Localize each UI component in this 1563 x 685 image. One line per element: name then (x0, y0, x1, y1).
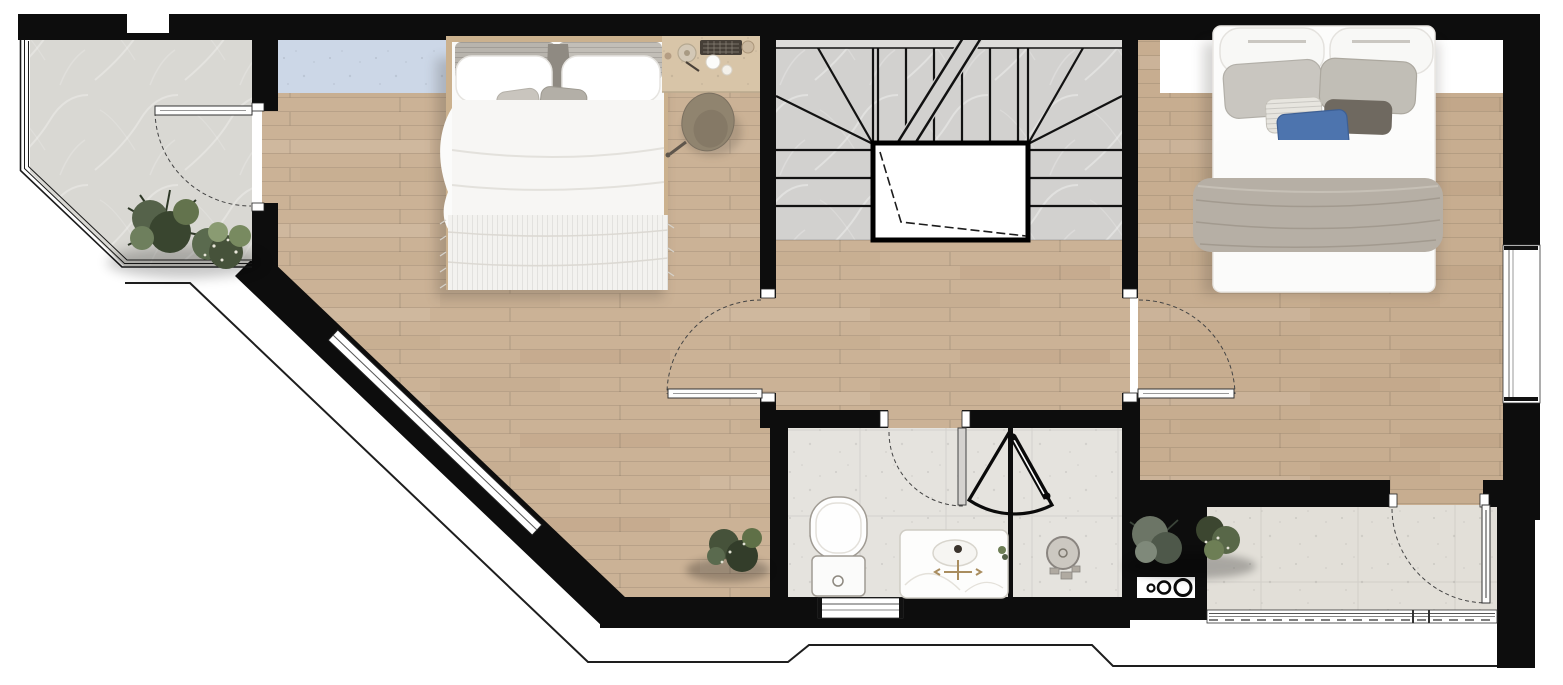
service-pipe-box (1137, 577, 1195, 598)
bed2-throw-blanket (1193, 178, 1443, 252)
wall-hall-bathroom-left (776, 410, 888, 428)
wall-top-notch (127, 14, 169, 33)
bedroom2-side-window (1503, 245, 1540, 403)
wall-bedroom1-hall-upper (760, 14, 776, 298)
keyboard (700, 40, 742, 55)
terrace-railing-glazing (1207, 610, 1497, 623)
wall-above-terrace (1140, 480, 1390, 507)
wall-right-lower (1497, 505, 1535, 668)
wall-hall-bathroom-right (962, 410, 1122, 428)
bed-2 (1193, 26, 1443, 294)
wall-right-upper (1503, 14, 1540, 245)
stairwell-void (873, 143, 1028, 240)
sink-basin (933, 540, 977, 566)
bathroom-window (818, 598, 903, 618)
toilet (810, 497, 867, 596)
desk (662, 36, 760, 92)
wall-bathroom-left (770, 428, 788, 600)
floor-plan-canvas (0, 0, 1563, 685)
bed-1 (436, 36, 674, 298)
vanity-sink (900, 530, 1008, 598)
wall-bedroom2-hall-upper (1122, 14, 1138, 298)
floor-plan (0, 0, 1563, 685)
wall-balcony-right-upper (252, 40, 278, 111)
desk-cup (706, 55, 720, 69)
door-leaf (958, 428, 966, 505)
toilet-bowl (810, 497, 867, 559)
desk-cup (722, 65, 732, 75)
sink-drain (954, 545, 962, 553)
